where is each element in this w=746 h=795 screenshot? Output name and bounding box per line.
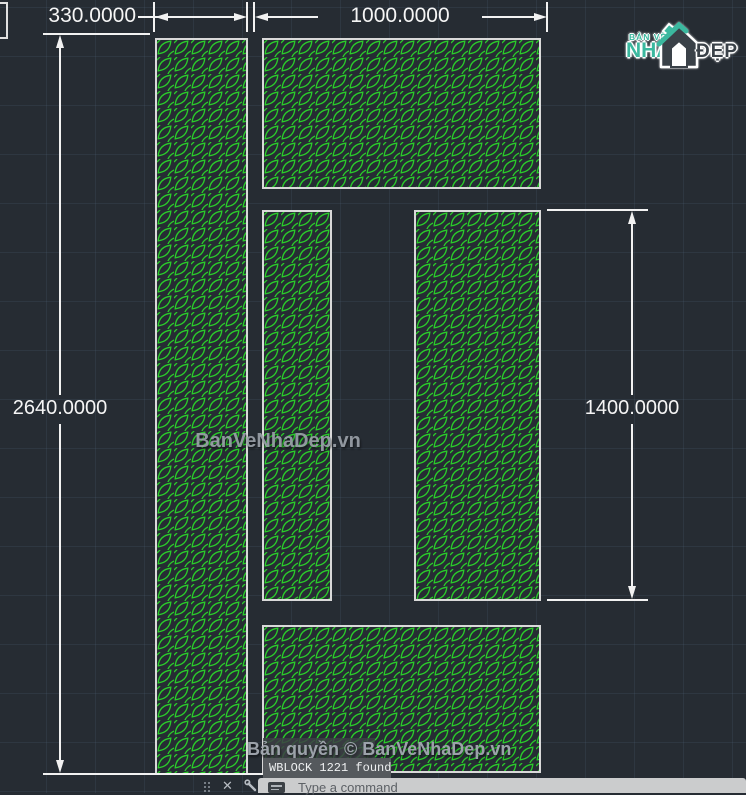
house-icon [655, 15, 701, 71]
dim-arrow-left [155, 13, 168, 21]
hatch-panel-middle-left[interactable] [262, 210, 332, 601]
dim-text-330: 330.0000 [20, 4, 136, 28]
dim-text-2640: 2640.0000 [6, 397, 114, 420]
dim-text-1000: 1000.0000 [318, 4, 482, 28]
drag-handle-icon[interactable] [204, 782, 212, 793]
dim-arrow-down [628, 586, 636, 599]
dim-arrow-right [234, 13, 247, 21]
dim-text-1400: 1400.0000 [577, 397, 687, 420]
command-prompt-icon [268, 782, 285, 793]
dim-line [59, 48, 61, 395]
dim-line [268, 16, 318, 18]
dim-line [138, 16, 234, 18]
dim-arrow-right [534, 13, 547, 21]
leaf-hatch [157, 40, 246, 773]
customize-wrench-icon[interactable] [244, 779, 257, 792]
dim-arrow-up [628, 211, 636, 224]
command-input-field[interactable] [258, 778, 746, 793]
dim-line [59, 424, 61, 760]
watermark-center: BanVeNhaDep.vn [186, 430, 370, 453]
leaf-hatch [416, 212, 539, 599]
dim-extension-line [547, 599, 648, 601]
drawing-canvas[interactable]: 330.0000 1000.0000 2640.0000 1400.0000 B… [0, 0, 746, 793]
hatch-panel-top[interactable] [262, 38, 541, 189]
hatch-panel-left-column[interactable] [155, 38, 248, 775]
dim-line [631, 224, 633, 395]
dim-arrow-left [255, 13, 268, 21]
cutoff-entity [0, 2, 8, 39]
logo-text-suffix: ĐẸP [696, 41, 738, 63]
leaf-hatch [264, 212, 330, 599]
hatch-panel-middle-right[interactable] [414, 210, 541, 601]
watermark-copyright: Bản quyền © BanVeNhaDep.vn [247, 739, 507, 760]
command-bar: ✕ [196, 778, 746, 793]
banvenhadep-logo: BẢN VẼ NHÀ ĐẸP [622, 12, 746, 82]
dim-arrow-down [56, 760, 64, 773]
dim-line [482, 16, 534, 18]
command-history-line: WBLOCK 1221 found [263, 758, 391, 778]
dim-arrow-up [56, 35, 64, 48]
close-icon[interactable]: ✕ [222, 778, 233, 793]
dim-line [631, 424, 633, 586]
leaf-hatch [264, 40, 539, 187]
